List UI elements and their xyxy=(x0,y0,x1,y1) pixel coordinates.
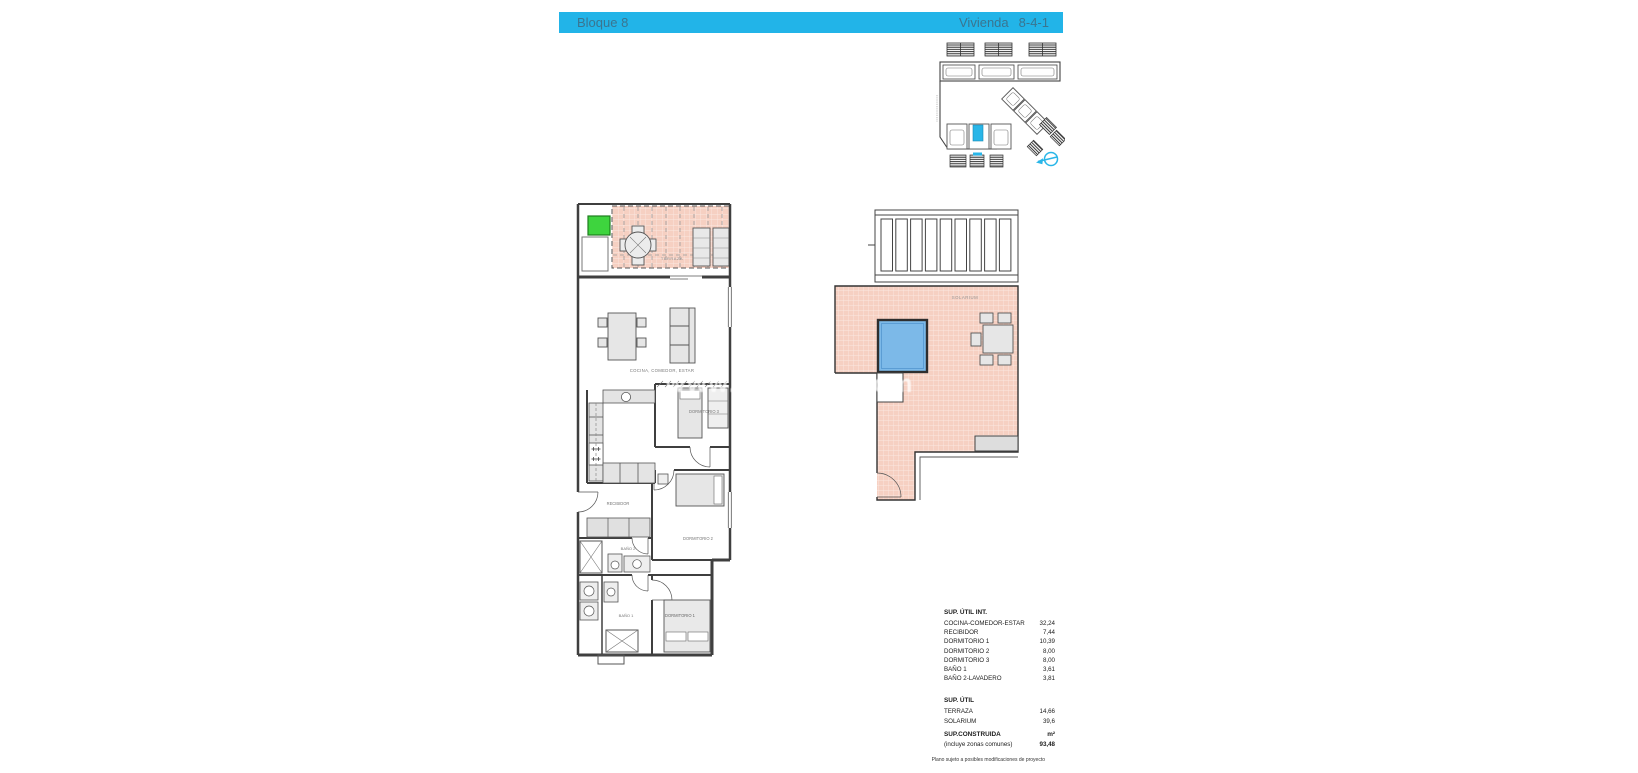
floor-plan-page: Bloque 8 Vivienda 8-4-1 xyxy=(0,0,1638,773)
solarium-label: SOLARIUM xyxy=(952,295,978,300)
bano-2: BAÑO 2 xyxy=(580,541,650,573)
terrace-slider-door xyxy=(670,276,702,279)
area-row: RECIBIDOR7,44 xyxy=(944,628,1055,637)
dormitorio-2: DORMITORIO 2 xyxy=(658,474,724,541)
pool-step xyxy=(877,373,903,402)
unit-label: Vivienda xyxy=(959,15,1009,30)
dormitorio-3: DORMITORIO 3 xyxy=(678,388,728,438)
bed xyxy=(664,600,710,652)
parking-strips-top xyxy=(947,43,1056,56)
area-row: DORMITORIO 38,00 xyxy=(944,656,1055,665)
area-row: COCINA-COMEDOR-ESTAR32,24 xyxy=(944,619,1055,628)
dormitorio3-label: DORMITORIO 3 xyxy=(689,409,720,414)
kitchen xyxy=(589,390,655,483)
block-title: Bloque 8 xyxy=(577,15,628,30)
terrace: TERRAZA xyxy=(582,206,730,271)
dining-table xyxy=(598,313,646,360)
bano-1: BAÑO 1 xyxy=(580,582,638,652)
unit-number: 8-4-1 xyxy=(1019,15,1049,30)
green-marker xyxy=(588,216,610,235)
unit-title: Vivienda 8-4-1 xyxy=(959,15,1049,30)
dormitorio1-label: DORMITORIO 1 xyxy=(665,613,696,618)
hall-closet xyxy=(587,518,650,537)
table-section-title: SUP. ÚTIL INT. xyxy=(944,607,1055,619)
sofa xyxy=(670,308,695,363)
bench xyxy=(975,436,1018,451)
highlighted-unit xyxy=(973,125,983,141)
area-row: TERRAZA14,66 xyxy=(944,707,1055,716)
plunge-pool xyxy=(878,320,927,372)
area-row: SOLARIUM39,6 xyxy=(944,717,1055,726)
terraza-label: TERRAZA xyxy=(661,256,683,261)
built-area-title: SUP.CONSTRUIDAm² xyxy=(944,730,1055,740)
disclaimer-footnote: Plano sujeto a posibles modificaciones d… xyxy=(745,757,1045,763)
built-area-row: (incluye zonas comunes)93,48 xyxy=(944,740,1055,750)
parking-strips-bottom xyxy=(950,153,1003,168)
pergola xyxy=(868,210,1018,282)
area-row: BAÑO 2-LAVADERO3,81 xyxy=(944,674,1055,683)
solarium-area: SOLARIUM xyxy=(835,286,1018,500)
dormitorio-1: DORMITORIO 1 xyxy=(664,600,710,652)
areas-table: SUP. ÚTIL INT. COCINA-COMEDOR-ESTAR32,24… xyxy=(944,607,1055,750)
dormitorio2-label: DORMITORIO 2 xyxy=(683,536,714,541)
apartment-floor-plan: TERRAZA xyxy=(552,192,742,670)
title-bar: Bloque 8 Vivienda 8-4-1 xyxy=(559,12,1063,33)
wardrobe xyxy=(708,388,728,428)
solarium-floor-plan: SOLARIUM xyxy=(828,195,1023,507)
living-room: COCINA, COMEDOR, ESTAR xyxy=(598,308,695,373)
table-section-title: SUP. ÚTIL xyxy=(944,695,1055,707)
terrace-storage xyxy=(582,237,608,271)
recibidor-label: RECIBIDOR xyxy=(607,501,630,506)
area-row: BAÑO 13,61 xyxy=(944,665,1055,674)
site-key-plan xyxy=(935,40,1065,170)
sink xyxy=(621,392,630,401)
bano1-label: BAÑO 1 xyxy=(619,613,634,618)
bano2-label: BAÑO 2 xyxy=(621,546,636,551)
area-row: DORMITORIO 110,39 xyxy=(944,637,1055,646)
compass-icon xyxy=(1036,153,1058,166)
area-row: DORMITORIO 28,00 xyxy=(944,647,1055,656)
recibidor: RECIBIDOR xyxy=(587,501,650,537)
cocina-label: COCINA, COMEDOR, ESTAR xyxy=(630,368,695,373)
